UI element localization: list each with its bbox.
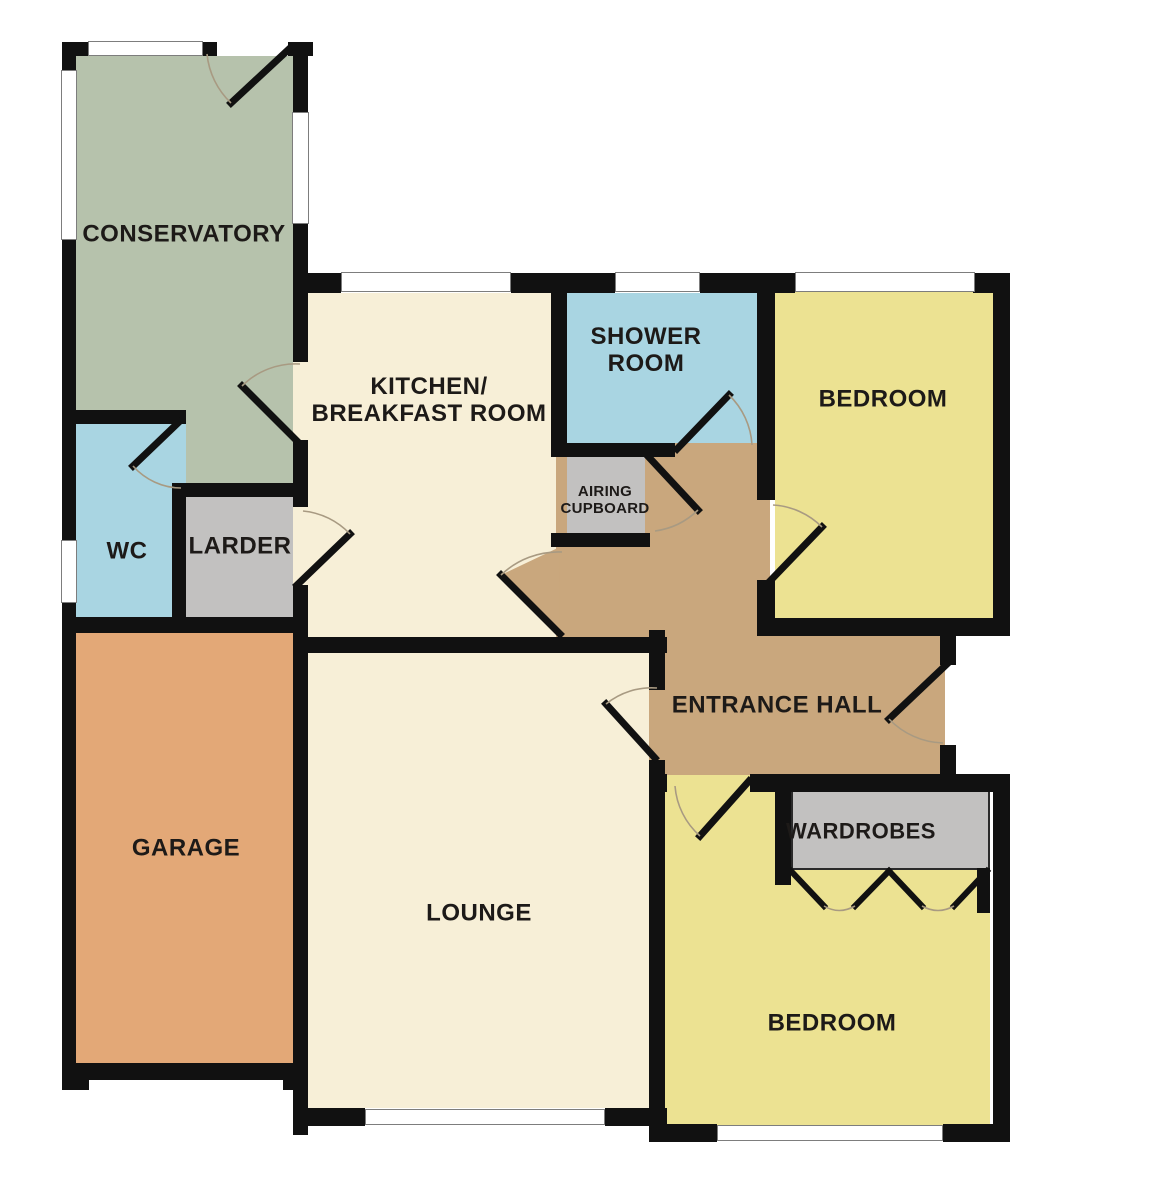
room-label-line: SHOWER	[591, 323, 702, 350]
wardrobe-door-fold	[889, 871, 922, 906]
door-swing-arc	[655, 510, 698, 531]
room-label-entrance-hall: ENTRANCE HALL	[672, 692, 883, 719]
door-swing-arc	[675, 786, 700, 836]
door-swing-arc	[303, 511, 350, 534]
room-label-line: BREAKFAST ROOM	[312, 400, 547, 427]
door-swing-arc	[207, 54, 231, 103]
room-label-line: ROOM	[591, 350, 702, 377]
doors-overlay	[0, 0, 1162, 1200]
door-leaf	[677, 395, 729, 449]
floor-plan: CONSERVATORY KITCHEN/ BREAKFAST ROOM SHO…	[0, 0, 1162, 1200]
room-label-bedroom-bottom: BEDROOM	[768, 1010, 897, 1037]
door-leaf	[770, 527, 822, 581]
wardrobe-door-arc	[922, 906, 954, 911]
door-swing-arc	[606, 688, 657, 704]
room-label-bedroom-top: BEDROOM	[819, 386, 948, 413]
door-swing-arc	[133, 466, 181, 488]
room-label-larder: LARDER	[189, 533, 292, 560]
wardrobe-door-fold	[855, 871, 889, 906]
room-label-airing-cupboard: AIRING CUPBOARD	[560, 483, 649, 517]
door-leaf	[242, 386, 296, 440]
door-leaf	[297, 534, 350, 585]
room-label-wc: WC	[107, 538, 148, 565]
room-label-wardrobes: WARDROBES	[786, 818, 936, 845]
room-label-line: KITCHEN/	[312, 373, 547, 400]
room-label-kitchen: KITCHEN/ BREAKFAST ROOM	[312, 373, 547, 427]
door-leaf	[501, 575, 560, 634]
wardrobe-door-arc	[824, 906, 855, 911]
door-leaf	[889, 665, 946, 719]
door-leaf	[231, 50, 288, 103]
room-label-shower: SHOWER ROOM	[591, 323, 702, 377]
door-leaf	[133, 422, 179, 466]
room-label-lounge: LOUNGE	[426, 900, 532, 927]
door-swing-arc	[501, 552, 562, 575]
door-swing-arc	[729, 395, 752, 445]
door-swing-arc	[242, 364, 300, 386]
wardrobe-door-fold	[791, 871, 824, 906]
wardrobe-door-fold	[954, 871, 987, 906]
door-swing-arc	[889, 719, 943, 743]
door-leaf	[645, 453, 698, 510]
room-label-conservatory: CONSERVATORY	[82, 221, 285, 248]
door-leaf	[606, 704, 655, 758]
room-label-line: CUPBOARD	[560, 500, 649, 517]
door-leaf	[700, 781, 749, 836]
door-swing-arc	[773, 505, 822, 527]
room-label-garage: GARAGE	[132, 835, 240, 862]
room-label-line: AIRING	[560, 483, 649, 500]
